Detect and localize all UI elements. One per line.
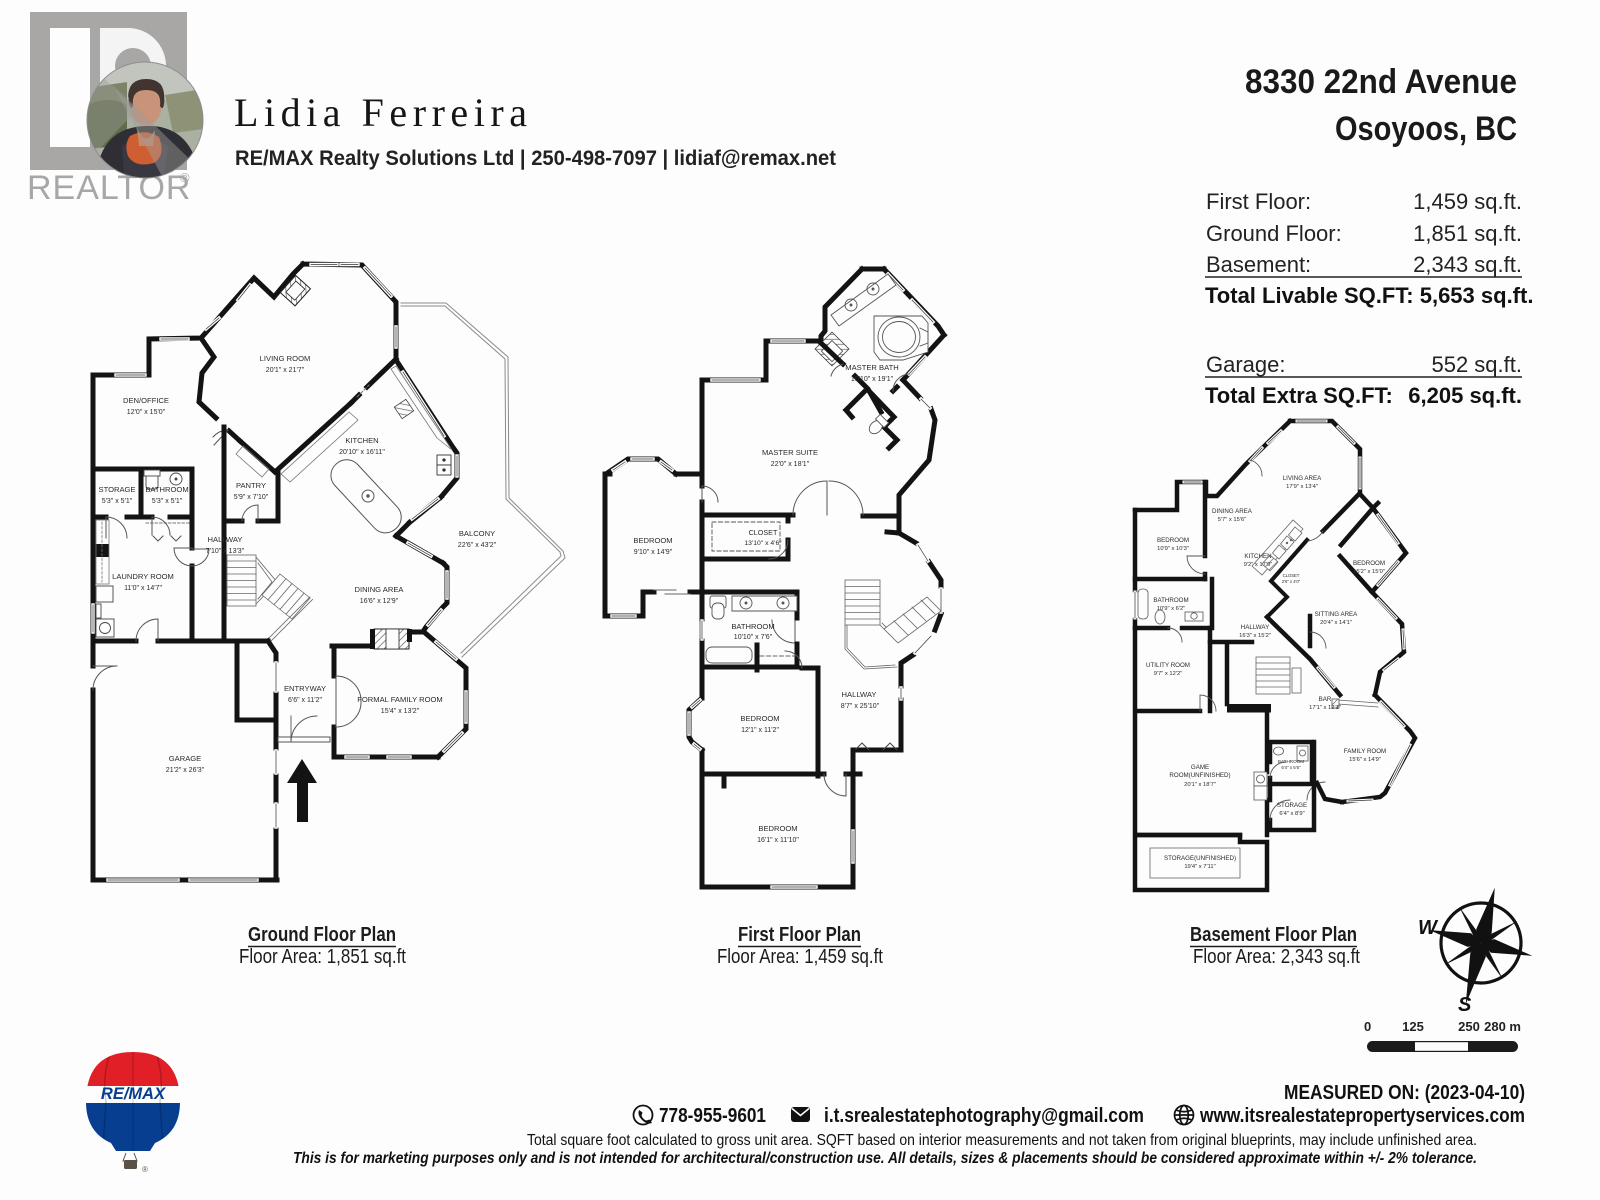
svg-text:DINING AREA: DINING AREA — [355, 585, 405, 594]
svg-text:Osoyoos, BC: Osoyoos, BC — [1335, 110, 1517, 148]
svg-text:First Floor Plan: First Floor Plan — [738, 923, 861, 946]
svg-text:Basement:: Basement: — [1206, 252, 1311, 277]
svg-text:13'10" x 4'6": 13'10" x 4'6" — [744, 540, 782, 547]
svg-text:5'9" x 7'10": 5'9" x 7'10" — [234, 494, 269, 501]
svg-text:This is for marketing purposes: This is for marketing purposes only and … — [293, 1150, 1477, 1167]
svg-text:FORMAL FAMILY ROOM: FORMAL FAMILY ROOM — [357, 695, 443, 704]
svg-text:20'1" x 21'7": 20'1" x 21'7" — [266, 367, 305, 374]
svg-text:BATHROOM: BATHROOM — [1153, 597, 1188, 604]
svg-text:9'2" x 17'9": 9'2" x 17'9" — [1244, 562, 1273, 568]
svg-text:15'6" x 14'9": 15'6" x 14'9" — [1349, 757, 1381, 763]
svg-text:20'4" x 14'1": 20'4" x 14'1" — [1320, 620, 1352, 626]
svg-text:www.itsrealestatepropertyservi: www.itsrealestatepropertyservices.com — [1199, 1105, 1525, 1127]
svg-text:9'7" x 12'2": 9'7" x 12'2" — [1154, 671, 1183, 677]
svg-text:17'1" x 12'1": 17'1" x 12'1" — [1309, 705, 1341, 711]
svg-text:10'9" x 10'3": 10'9" x 10'3" — [1157, 546, 1189, 552]
svg-text:12'0" x 15'0": 12'0" x 15'0" — [127, 409, 166, 416]
svg-text:Floor Area: 1,851 sq.ft: Floor Area: 1,851 sq.ft — [239, 946, 406, 968]
svg-text:RE/MAX: RE/MAX — [101, 1085, 166, 1103]
svg-text:12'1" x 11'2": 12'1" x 11'2" — [741, 727, 779, 734]
svg-text:Floor Area: 2,343 sq.ft: Floor Area: 2,343 sq.ft — [1193, 946, 1360, 968]
svg-text:i.t.srealestatephotography@gma: i.t.srealestatephotography@gmail.com — [824, 1105, 1144, 1127]
svg-text:SITTING AREA: SITTING AREA — [1315, 611, 1359, 618]
svg-text:9'10" x 14'9": 9'10" x 14'9" — [634, 549, 673, 556]
svg-text:KITCHEN: KITCHEN — [345, 436, 378, 445]
svg-text:6'4" x 8'9": 6'4" x 8'9" — [1279, 811, 1304, 817]
svg-text:UTILITY ROOM: UTILITY ROOM — [1146, 662, 1190, 669]
svg-text:MEASURED ON: (2023-04-10): MEASURED ON: (2023-04-10) — [1284, 1082, 1525, 1104]
svg-text:STORAGE: STORAGE — [1277, 802, 1307, 809]
svg-text:1,851 sq.ft.: 1,851 sq.ft. — [1413, 221, 1522, 246]
svg-text:2'6" x 4'0": 2'6" x 4'0" — [1282, 579, 1301, 584]
svg-text:6,205 sq.ft.: 6,205 sq.ft. — [1408, 383, 1522, 408]
svg-text:Floor Area: 1,459 sq.ft: Floor Area: 1,459 sq.ft — [717, 946, 883, 968]
svg-text:STORAGE: STORAGE — [99, 485, 136, 494]
svg-text:FAMILY ROOM: FAMILY ROOM — [1344, 748, 1386, 755]
svg-text:552 sq.ft.: 552 sq.ft. — [1431, 352, 1522, 377]
svg-text:®: ® — [142, 1165, 148, 1174]
svg-text:8330 22nd Avenue: 8330 22nd Avenue — [1245, 63, 1517, 101]
svg-text:20'10" x 16'11": 20'10" x 16'11" — [339, 449, 385, 456]
svg-text:LIVING ROOM: LIVING ROOM — [260, 354, 311, 363]
svg-text:22'0" x 18'1": 22'0" x 18'1" — [771, 461, 810, 468]
svg-text:BATHROOM: BATHROOM — [731, 622, 774, 631]
svg-text:17'9" x 13'4": 17'9" x 13'4" — [1286, 484, 1318, 490]
svg-text:10'9" x 6'2": 10'9" x 6'2" — [1157, 606, 1186, 612]
svg-text:250: 250 — [1458, 1019, 1480, 1034]
svg-text:Total square foot calculated t: Total square foot calculated to gross un… — [527, 1132, 1477, 1149]
svg-text:BEDROOM: BEDROOM — [1353, 560, 1385, 567]
svg-text:BALCONY: BALCONY — [459, 529, 495, 538]
svg-text:16'1" x 11'10": 16'1" x 11'10" — [757, 837, 799, 844]
svg-text:BATHROOM: BATHROOM — [145, 485, 188, 494]
svg-text:5'3" x 5'1": 5'3" x 5'1" — [102, 498, 133, 505]
svg-text:GARAGE: GARAGE — [169, 754, 202, 763]
svg-text:DINING AREA: DINING AREA — [1212, 508, 1253, 515]
svg-text:Total Livable SQ.FT: 5,653 sq.: Total Livable SQ.FT: 5,653 sq.ft. — [1205, 283, 1533, 308]
svg-text:0: 0 — [1364, 1019, 1371, 1034]
svg-text:HALLWAY: HALLWAY — [842, 690, 877, 699]
svg-text:Total Extra SQ.FT:: Total Extra SQ.FT: — [1205, 383, 1393, 408]
svg-text:HALLWAY: HALLWAY — [208, 535, 243, 544]
svg-text:GAME: GAME — [1191, 764, 1209, 771]
svg-text:HALLWAY: HALLWAY — [1241, 624, 1269, 631]
svg-text:KITCHEN: KITCHEN — [1244, 553, 1271, 560]
svg-text:RE/MAX Realty Solutions Ltd |: RE/MAX Realty Solutions Ltd | 250-498-70… — [235, 147, 836, 170]
svg-text:15'2" x 15'0": 15'2" x 15'0" — [1353, 569, 1385, 575]
svg-text:22'6" x 43'2": 22'6" x 43'2" — [458, 542, 497, 549]
svg-text:®: ® — [180, 170, 190, 185]
svg-text:ENTRYWAY: ENTRYWAY — [284, 684, 326, 693]
svg-text:5'7" x 15'6": 5'7" x 15'6" — [1218, 517, 1247, 523]
svg-text:6'6" x 11'2": 6'6" x 11'2" — [288, 697, 322, 704]
svg-text:10'10" x 19'1": 10'10" x 19'1" — [851, 376, 894, 383]
svg-text:6'4" x 5'6": 6'4" x 5'6" — [1281, 765, 1301, 770]
svg-text:778-955-9601: 778-955-9601 — [659, 1105, 766, 1127]
svg-text:125: 125 — [1402, 1019, 1424, 1034]
svg-text:MASTER BATH: MASTER BATH — [845, 363, 898, 372]
svg-text:BATHROOM: BATHROOM — [1278, 759, 1304, 764]
svg-text:8'7" x 25'10": 8'7" x 25'10" — [841, 703, 880, 710]
svg-text:Garage:: Garage: — [1206, 352, 1286, 377]
svg-text:LIVING AREA: LIVING AREA — [1283, 475, 1322, 482]
svg-text:ROOM(UNFINISHED): ROOM(UNFINISHED) — [1169, 772, 1230, 779]
svg-text:20'1" x 18'7": 20'1" x 18'7" — [1184, 782, 1216, 788]
svg-text:LAUNDRY ROOM: LAUNDRY ROOM — [112, 572, 174, 581]
svg-text:Ground Floor Plan: Ground Floor Plan — [248, 923, 396, 946]
svg-text:S: S — [1458, 994, 1472, 1016]
svg-text:Basement Floor Plan: Basement Floor Plan — [1190, 923, 1357, 946]
svg-text:PANTRY: PANTRY — [236, 481, 266, 490]
svg-text:Ground Floor:: Ground Floor: — [1206, 221, 1342, 246]
svg-text:5'3" x 5'1": 5'3" x 5'1" — [152, 498, 183, 505]
svg-text:REALTOR: REALTOR — [27, 169, 191, 207]
svg-text:CLOSET: CLOSET — [1283, 573, 1300, 578]
svg-text:BAR: BAR — [1319, 696, 1332, 703]
svg-text:11'0" x 14'7": 11'0" x 14'7" — [124, 585, 162, 592]
svg-text:DEN/OFFICE: DEN/OFFICE — [123, 396, 169, 405]
svg-text:16'3" x 15'2": 16'3" x 15'2" — [1239, 633, 1271, 639]
svg-text:MASTER SUITE: MASTER SUITE — [762, 448, 818, 457]
svg-text:First Floor:: First Floor: — [1206, 189, 1311, 214]
svg-text:2,343 sq.ft.: 2,343 sq.ft. — [1413, 252, 1522, 277]
svg-text:CLOSET: CLOSET — [749, 528, 778, 537]
svg-text:1,459 sq.ft.: 1,459 sq.ft. — [1413, 189, 1522, 214]
svg-text:STORAGE(UNFINISHED): STORAGE(UNFINISHED) — [1164, 855, 1236, 862]
svg-text:280 m: 280 m — [1484, 1019, 1521, 1034]
svg-text:7'10" x 13'3": 7'10" x 13'3" — [206, 548, 245, 555]
svg-text:BEDROOM: BEDROOM — [1157, 537, 1189, 544]
svg-text:BEDROOM: BEDROOM — [758, 824, 797, 833]
svg-text:19'4" x 7'11": 19'4" x 7'11" — [1184, 864, 1215, 870]
svg-text:W: W — [1418, 917, 1439, 939]
svg-text:BEDROOM: BEDROOM — [740, 714, 779, 723]
svg-text:10'10" x 7'6": 10'10" x 7'6" — [734, 634, 773, 641]
svg-text:BEDROOM: BEDROOM — [633, 536, 672, 545]
svg-text:15'4" x 13'2": 15'4" x 13'2" — [381, 708, 420, 715]
svg-text:21'2" x 26'3": 21'2" x 26'3" — [166, 767, 205, 774]
svg-text:16'6" x 12'9": 16'6" x 12'9" — [360, 598, 399, 605]
